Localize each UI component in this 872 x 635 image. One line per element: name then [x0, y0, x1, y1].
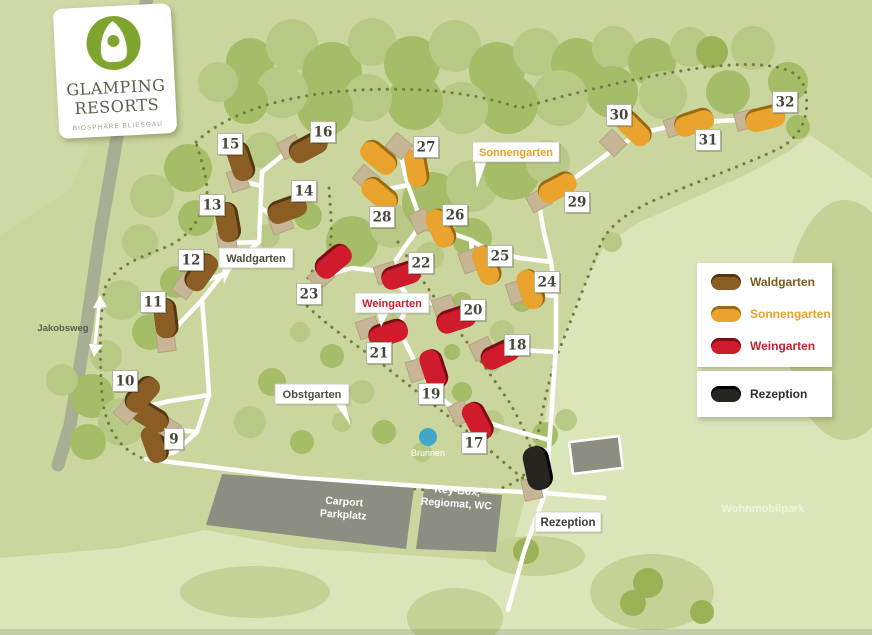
svg-text:32: 32 — [776, 95, 795, 111]
svg-text:26: 26 — [446, 208, 465, 224]
logo-subtitle: BIOSPHÄRE BLIESGAU — [59, 120, 177, 133]
legend-item-weingarten: Weingarten — [711, 333, 832, 359]
svg-text:21: 21 — [370, 346, 389, 362]
svg-text:9: 9 — [169, 432, 178, 448]
svg-text:24: 24 — [538, 275, 557, 291]
svg-text:28: 28 — [373, 210, 392, 226]
site-number-13: 13 — [200, 195, 227, 218]
site-number-24: 24 — [535, 272, 562, 295]
rezeption-tent-icon — [711, 386, 741, 402]
svg-text:Weingarten: Weingarten — [362, 298, 422, 310]
svg-text:12: 12 — [182, 253, 201, 269]
site-number-21: 21 — [367, 343, 394, 366]
svg-text:Obstgarten: Obstgarten — [283, 389, 342, 401]
site-number-23: 23 — [297, 284, 324, 307]
site-number-9: 9 — [165, 429, 186, 452]
site-number-18: 18 — [505, 335, 532, 358]
legend-label: Waldgarten — [750, 275, 815, 289]
outbuilding — [569, 436, 623, 474]
logo-title-line2: RESORTS — [57, 95, 176, 120]
svg-text:20: 20 — [464, 303, 483, 319]
site-number-25: 25 — [488, 246, 515, 269]
svg-text:19: 19 — [422, 387, 441, 403]
site-number-17: 17 — [462, 433, 489, 456]
site-number-15: 15 — [218, 134, 245, 157]
brunnen-well — [419, 428, 437, 446]
legend-reception: Rezeption — [697, 371, 832, 417]
svg-text:27: 27 — [417, 140, 436, 156]
waldgarten-tent-icon — [711, 274, 741, 290]
svg-text:11: 11 — [144, 295, 163, 311]
svg-text:17: 17 — [465, 436, 484, 452]
svg-text:16: 16 — [314, 125, 333, 141]
bottom-edge-shadow — [0, 629, 872, 635]
site-number-27: 27 — [414, 137, 441, 160]
svg-text:Rezeption: Rezeption — [541, 517, 596, 529]
site-number-19: 19 — [419, 384, 446, 407]
site-number-10: 10 — [113, 371, 140, 394]
weingarten-tent-icon — [711, 338, 741, 354]
site-number-26: 26 — [443, 205, 470, 228]
site-number-29: 29 — [565, 192, 592, 215]
svg-text:Wohnmobilpark: Wohnmobilpark — [722, 503, 806, 515]
legend-item-waldgarten: Waldgarten — [711, 269, 832, 295]
svg-text:22: 22 — [412, 256, 431, 272]
glamping-resorts-logo-icon — [83, 13, 144, 74]
svg-text:29: 29 — [568, 195, 587, 211]
site-number-16: 16 — [311, 122, 338, 145]
site-number-20: 20 — [461, 300, 488, 323]
legend-label: Weingarten — [750, 339, 815, 353]
reception-label: Rezeption — [535, 512, 603, 534]
poi-label-carport: CarportParkplatz — [320, 494, 368, 522]
svg-text:14: 14 — [295, 184, 314, 200]
site-number-14: 14 — [292, 181, 319, 204]
sonnengarten-tent-icon — [711, 306, 741, 322]
site-number-22: 22 — [409, 253, 436, 276]
legend-label: Sonnengarten — [750, 307, 831, 321]
svg-text:Brunnen: Brunnen — [411, 448, 445, 458]
site-number-11: 11 — [141, 292, 168, 315]
site-number-32: 32 — [773, 92, 800, 115]
legend-label: Rezeption — [750, 387, 807, 401]
site-number-12: 12 — [179, 250, 206, 273]
svg-text:Waldgarten: Waldgarten — [226, 253, 286, 265]
site-number-30: 30 — [607, 105, 634, 128]
legend-item-sonnengarten: Sonnengarten — [711, 301, 832, 327]
logo-card: GLAMPING RESORTS BIOSPHÄRE BLIESGAU — [53, 3, 178, 139]
glamping-resort-map: WaldgartenSonnengartenWeingartenObstgart… — [0, 0, 872, 635]
svg-text:18: 18 — [508, 338, 527, 354]
poi-label-wohnmobilpark: Wohnmobilpark — [722, 503, 806, 515]
svg-text:15: 15 — [221, 137, 240, 153]
svg-text:13: 13 — [203, 198, 222, 214]
svg-text:30: 30 — [610, 108, 629, 124]
svg-text:31: 31 — [699, 133, 718, 149]
svg-text:25: 25 — [491, 249, 510, 265]
svg-text:Sonnengarten: Sonnengarten — [479, 147, 553, 159]
svg-text:Jakobsweg: Jakobsweg — [37, 323, 88, 334]
svg-text:10: 10 — [116, 374, 135, 390]
poi-label-jakobsweg: Jakobsweg — [37, 323, 88, 334]
svg-text:CarportParkplatz: CarportParkplatz — [320, 494, 368, 522]
legend-garden-types: Waldgarten Sonnengarten Weingarten — [697, 263, 832, 367]
poi-label-brunnen: Brunnen — [411, 448, 445, 458]
site-number-28: 28 — [370, 207, 397, 230]
site-number-31: 31 — [696, 130, 723, 153]
svg-text:23: 23 — [300, 287, 319, 303]
legend-item-rezeption: Rezeption — [711, 381, 832, 407]
